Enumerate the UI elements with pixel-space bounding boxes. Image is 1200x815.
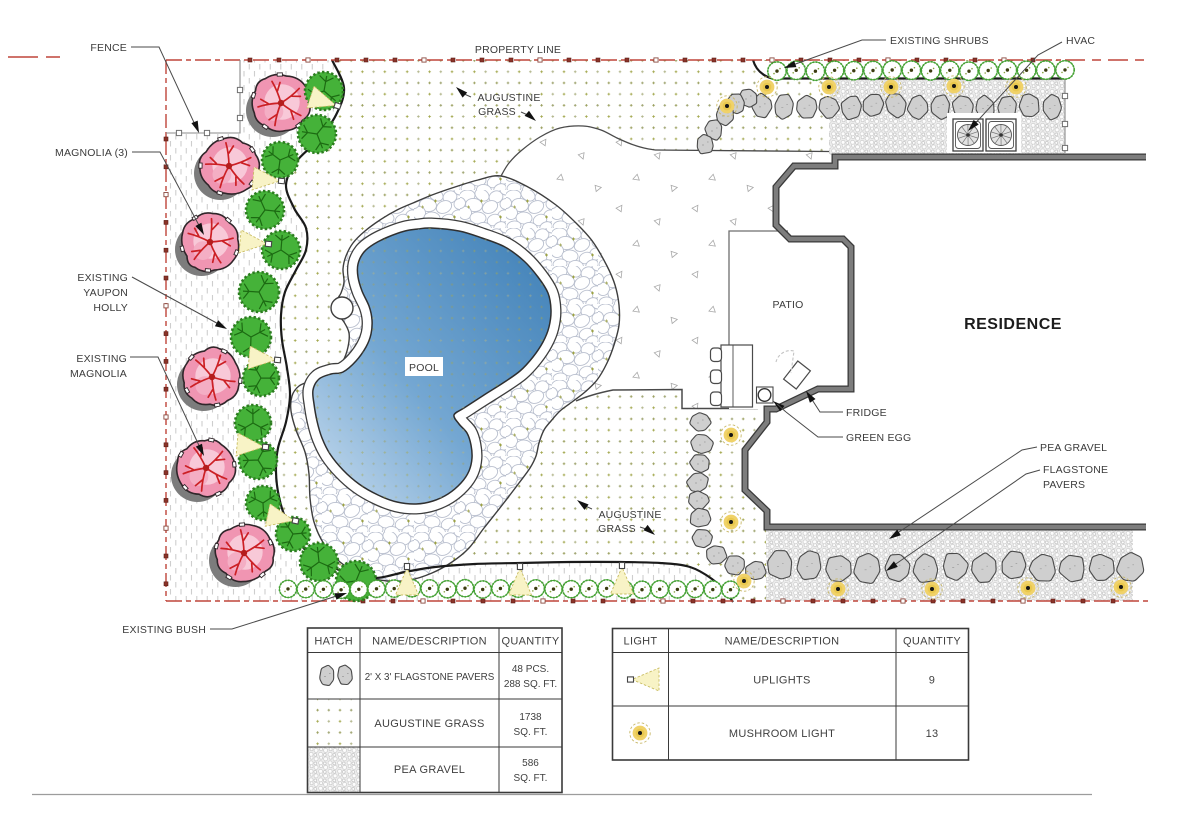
- svg-text:UPLIGHTS: UPLIGHTS: [753, 675, 810, 687]
- svg-text:QUANTITY: QUANTITY: [903, 636, 961, 648]
- svg-text:1738: 1738: [519, 712, 542, 723]
- svg-text:GRASS: GRASS: [478, 106, 516, 118]
- svg-text:LIGHT: LIGHT: [624, 636, 658, 648]
- svg-text:MAGNOLIA: MAGNOLIA: [70, 368, 127, 380]
- svg-text:48 PCS.: 48 PCS.: [512, 664, 549, 675]
- svg-text:GRASS: GRASS: [598, 523, 636, 535]
- svg-text:SQ. FT.: SQ. FT.: [514, 727, 548, 738]
- svg-text:PAVERS: PAVERS: [1043, 479, 1085, 491]
- svg-text:MAGNOLIA (3): MAGNOLIA (3): [55, 147, 128, 159]
- svg-text:EXISTING: EXISTING: [77, 272, 128, 284]
- svg-text:YAUPON: YAUPON: [83, 287, 128, 299]
- svg-text:RESIDENCE: RESIDENCE: [964, 316, 1062, 333]
- svg-text:PROPERTY LINE: PROPERTY LINE: [475, 44, 561, 56]
- svg-text:PATIO: PATIO: [773, 299, 804, 311]
- svg-text:AUGUSTINE: AUGUSTINE: [598, 509, 661, 521]
- svg-text:HVAC: HVAC: [1066, 35, 1095, 47]
- svg-text:EXISTING SHRUBS: EXISTING SHRUBS: [890, 35, 989, 47]
- svg-text:FRIDGE: FRIDGE: [846, 407, 887, 419]
- svg-text:AUGUSTINE GRASS: AUGUSTINE GRASS: [374, 718, 484, 730]
- svg-text:NAME/DESCRIPTION: NAME/DESCRIPTION: [372, 636, 487, 648]
- svg-text:FENCE: FENCE: [90, 42, 127, 54]
- svg-text:PEA GRAVEL: PEA GRAVEL: [1040, 442, 1107, 454]
- svg-text:HATCH: HATCH: [314, 636, 353, 648]
- svg-text:EXISTING: EXISTING: [76, 353, 127, 365]
- svg-text:MUSHROOM LIGHT: MUSHROOM LIGHT: [729, 728, 835, 740]
- svg-text:QUANTITY: QUANTITY: [501, 636, 559, 648]
- svg-text:NAME/DESCRIPTION: NAME/DESCRIPTION: [725, 636, 840, 648]
- svg-text:288 SQ. FT.: 288 SQ. FT.: [504, 679, 557, 690]
- svg-text:FLAGSTONE: FLAGSTONE: [1043, 464, 1108, 476]
- svg-text:2' X 3' FLAGSTONE PAVERS: 2' X 3' FLAGSTONE PAVERS: [365, 672, 495, 683]
- svg-text:EXISTING BUSH: EXISTING BUSH: [122, 624, 206, 636]
- svg-text:AUGUSTINE: AUGUSTINE: [477, 92, 540, 104]
- svg-text:HOLLY: HOLLY: [93, 302, 128, 314]
- svg-text:13: 13: [926, 728, 939, 740]
- svg-text:586: 586: [522, 758, 539, 769]
- svg-text:9: 9: [929, 675, 935, 687]
- svg-text:GREEN EGG: GREEN EGG: [846, 432, 911, 444]
- svg-text:POOL: POOL: [409, 362, 439, 374]
- svg-text:PEA GRAVEL: PEA GRAVEL: [394, 764, 465, 776]
- svg-text:SQ. FT.: SQ. FT.: [514, 773, 548, 784]
